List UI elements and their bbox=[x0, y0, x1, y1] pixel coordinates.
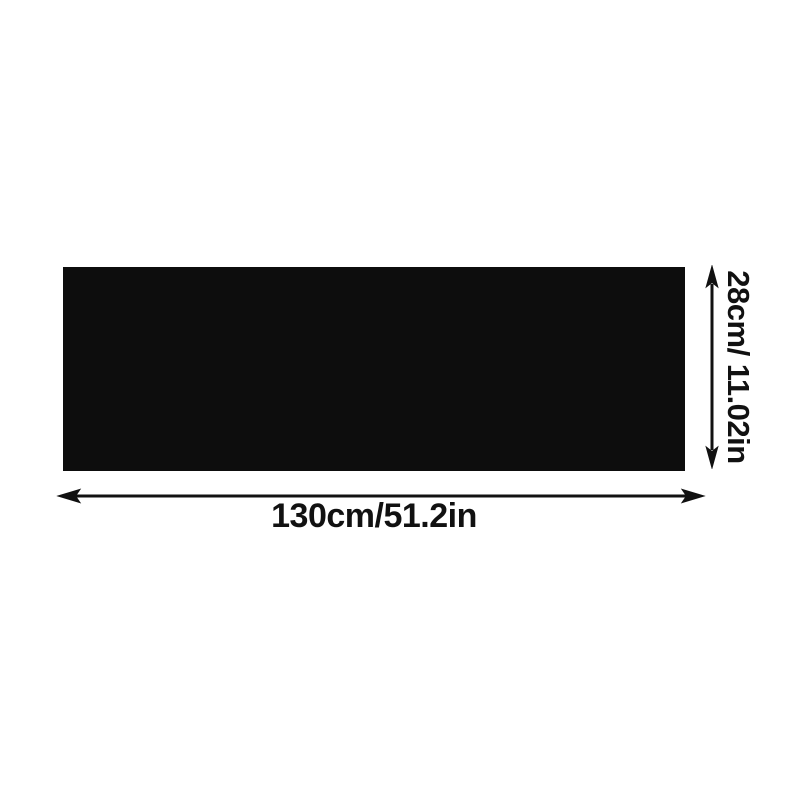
height-dimension-label: 28cm/ 11.02in bbox=[720, 270, 756, 463]
width-dimension-label: 130cm/51.2in bbox=[63, 497, 685, 536]
height-dimension-arrow-icon bbox=[702, 265, 722, 469]
dimension-diagram: 28cm/ 11.02in 130cm/51.2in bbox=[0, 0, 800, 800]
product-swatch bbox=[63, 267, 685, 471]
